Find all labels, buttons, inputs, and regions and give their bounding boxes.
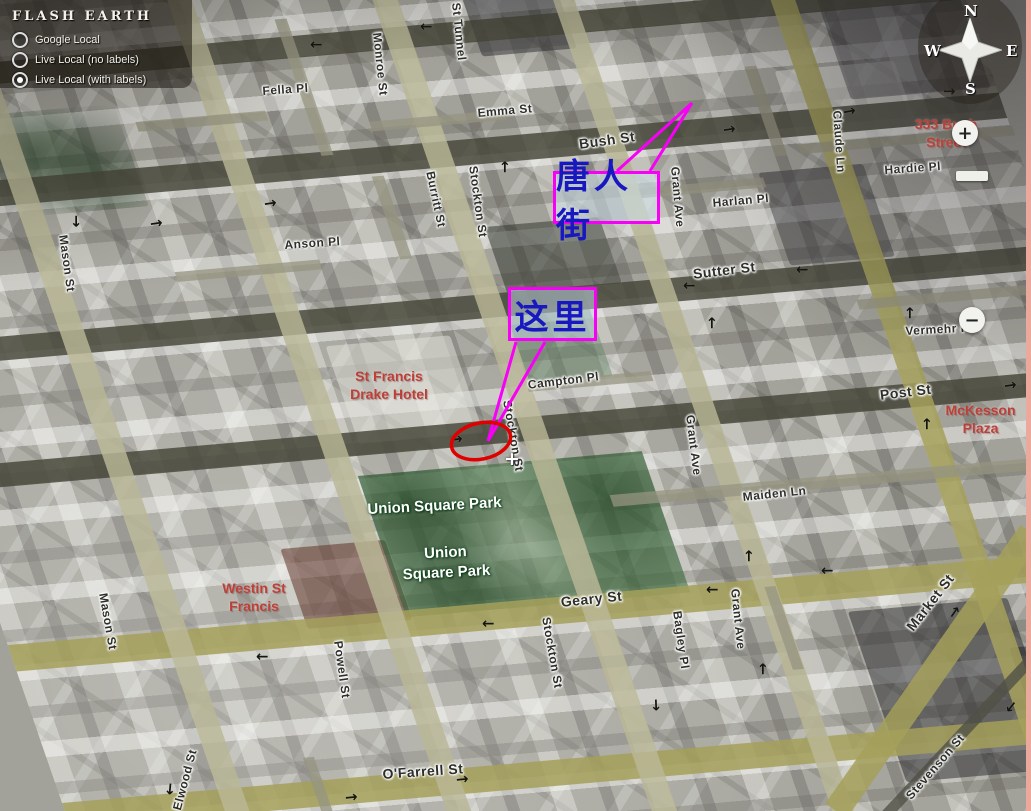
compass-east-label: E	[1006, 42, 1017, 60]
street-label: Sutter St	[692, 258, 756, 282]
map-edge-strip	[1026, 0, 1031, 811]
street-label: Monroe St	[370, 32, 391, 96]
map-canvas[interactable]: →→→→→→→→→→→→→→→→→→→→→→→→→→→→ Fella PlMon…	[0, 0, 1031, 811]
street-label: Fella Pl	[262, 81, 309, 98]
map-center-marker: +	[504, 448, 520, 470]
chinatown-annotation: 唐人街	[553, 171, 660, 224]
street-label: Anson Pl	[284, 234, 341, 252]
street-label: Stevenson St	[903, 731, 967, 802]
place-label: McKesson Plaza	[938, 402, 1023, 437]
street-label: Stockton St	[466, 165, 490, 238]
compass-west-label: W	[924, 42, 941, 60]
street-label: Emma St	[477, 101, 533, 120]
street-label: Elwood St	[170, 748, 200, 811]
zoom-slider[interactable]	[956, 171, 988, 181]
layer-option-google-local[interactable]: Google Local	[0, 30, 192, 50]
street-label: Hardie Pl	[884, 159, 941, 177]
street-label: St Tunnel	[449, 2, 469, 61]
zoom-out-button[interactable]: −	[959, 307, 985, 333]
here-annotation: 这里	[508, 287, 597, 341]
layer-options: Google LocalLive Local (no labels)Live L…	[0, 30, 192, 90]
park-label: Union Square Park	[390, 540, 502, 585]
street-label: Post St	[879, 381, 932, 403]
map-labels-layer: Fella PlMonroe StSt TunnelEmma StBush St…	[0, 0, 1031, 811]
street-label: Campton Pl	[527, 369, 600, 392]
street-label: Grant Ave	[683, 414, 704, 476]
layer-option-live-local-no-labels[interactable]: Live Local (no labels)	[0, 50, 192, 70]
layer-option-live-local-with-labels[interactable]: Live Local (with labels)	[0, 70, 192, 90]
compass-star-icon	[938, 18, 1002, 82]
street-label: Claude Ln	[830, 110, 848, 173]
flash-earth-panel: FLASH EARTH Google LocalLive Local (no l…	[0, 0, 192, 88]
compass-south-label: S	[965, 80, 976, 98]
layer-option-label: Live Local (no labels)	[35, 54, 139, 66]
radio-icon[interactable]	[12, 72, 28, 88]
street-label: Mason St	[56, 234, 78, 293]
street-label: Maiden Ln	[742, 483, 807, 504]
radio-icon[interactable]	[12, 32, 28, 48]
street-label: Market St	[903, 571, 957, 634]
street-label: Bagley Pl	[670, 610, 692, 670]
street-label: Geary St	[560, 588, 623, 610]
compass-rose[interactable]: N W E S	[918, 0, 1022, 106]
street-label: Mason St	[96, 592, 120, 651]
street-label: O'Farrell St	[382, 760, 464, 782]
street-label: Powell St	[331, 640, 353, 699]
layer-option-label: Live Local (with labels)	[35, 74, 146, 86]
place-label: St Francis Drake Hotel	[330, 368, 448, 403]
place-label: Westin St Francis	[195, 580, 313, 615]
radio-icon[interactable]	[12, 52, 28, 68]
layer-option-label: Google Local	[35, 34, 100, 46]
zoom-in-button[interactable]: +	[952, 120, 978, 146]
street-label: Grant Ave	[728, 588, 748, 650]
street-label: Burritt St	[423, 170, 449, 229]
street-label: Stockton St	[539, 616, 565, 690]
street-label: Grant Ave	[668, 166, 687, 228]
compass-north-label: N	[964, 2, 978, 20]
street-label: Harlan Pl	[712, 191, 770, 210]
park-label: Union Square Park	[367, 493, 502, 519]
app-title: FLASH EARTH	[0, 0, 192, 30]
